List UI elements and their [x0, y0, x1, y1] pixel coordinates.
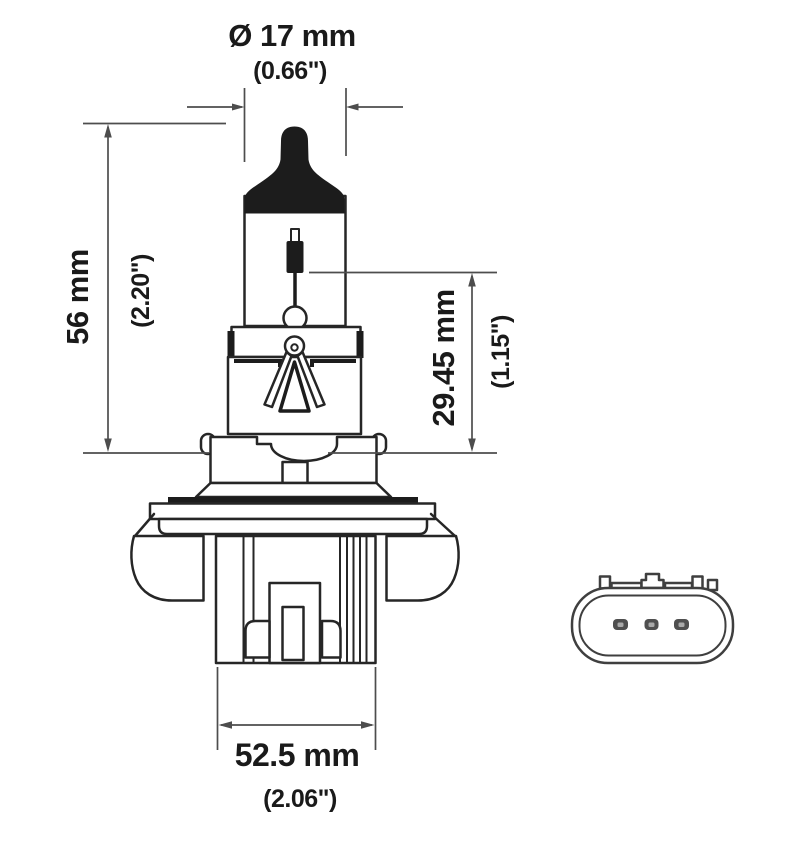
arrowhead: [468, 273, 476, 287]
dimension-length: 56 mm (2.20"): [60, 124, 226, 454]
dimension-label-imperial: (0.66"): [253, 57, 327, 85]
flange-plate-lower: [159, 519, 427, 534]
connector-tab: [693, 577, 703, 589]
dimension-width: 52.5 mm (2.06"): [218, 667, 376, 813]
pin-center: [649, 623, 655, 628]
terminal-slot-right: [322, 621, 341, 658]
base-wing-left: [131, 536, 203, 601]
dimension-label-metric: 29.45 mm: [426, 289, 461, 426]
connector-key-tab: [642, 574, 664, 588]
pin-center: [618, 623, 624, 628]
arrowhead: [104, 439, 112, 453]
flange-chamfer-right: [431, 514, 455, 536]
dimension-label-metric: 56 mm: [60, 249, 95, 345]
terminal-slot-center: [283, 607, 304, 660]
terminal-slot-left: [246, 621, 270, 658]
arrowhead: [346, 104, 359, 111]
dimension-label-metric: Ø 17 mm: [228, 18, 355, 53]
pin-center: [679, 623, 685, 628]
filament: [287, 241, 304, 273]
arrowhead: [468, 439, 476, 453]
technical-drawing-page: Ø 17 mm (0.66") 56 mm (2.20") 29.45 mm (…: [0, 0, 800, 843]
bulb-front-view: [131, 127, 458, 664]
dimension-label-imperial: (1.15"): [487, 315, 515, 389]
dimension-label-imperial: (2.06"): [263, 785, 337, 813]
flange-section: [135, 497, 455, 536]
connector-pins: [613, 619, 689, 630]
arrowhead: [232, 104, 245, 111]
collar-flare: [196, 483, 391, 497]
connector-rear-view: [572, 574, 733, 663]
base-body: [216, 536, 376, 663]
base-wing-right: [387, 536, 459, 601]
arrowhead: [361, 721, 375, 729]
black-tip: [245, 127, 345, 214]
flange-plate-upper: [150, 504, 435, 520]
dimension-label-imperial: (2.20"): [127, 254, 155, 328]
arrowhead: [219, 721, 233, 729]
collar-section: [196, 434, 391, 497]
collar-key: [283, 462, 308, 483]
support-pivot: [285, 337, 304, 356]
connector-tab: [600, 577, 610, 589]
flange-chamfer-left: [135, 514, 154, 536]
dimension-label-metric: 52.5 mm: [235, 737, 360, 773]
connector-tab: [708, 580, 717, 590]
arrowhead: [104, 124, 112, 138]
band-seal-right: [357, 331, 364, 358]
bulb-diagram-svg: Ø 17 mm (0.66") 56 mm (2.20") 29.45 mm (…: [0, 0, 800, 843]
band-seal-left: [228, 331, 235, 358]
